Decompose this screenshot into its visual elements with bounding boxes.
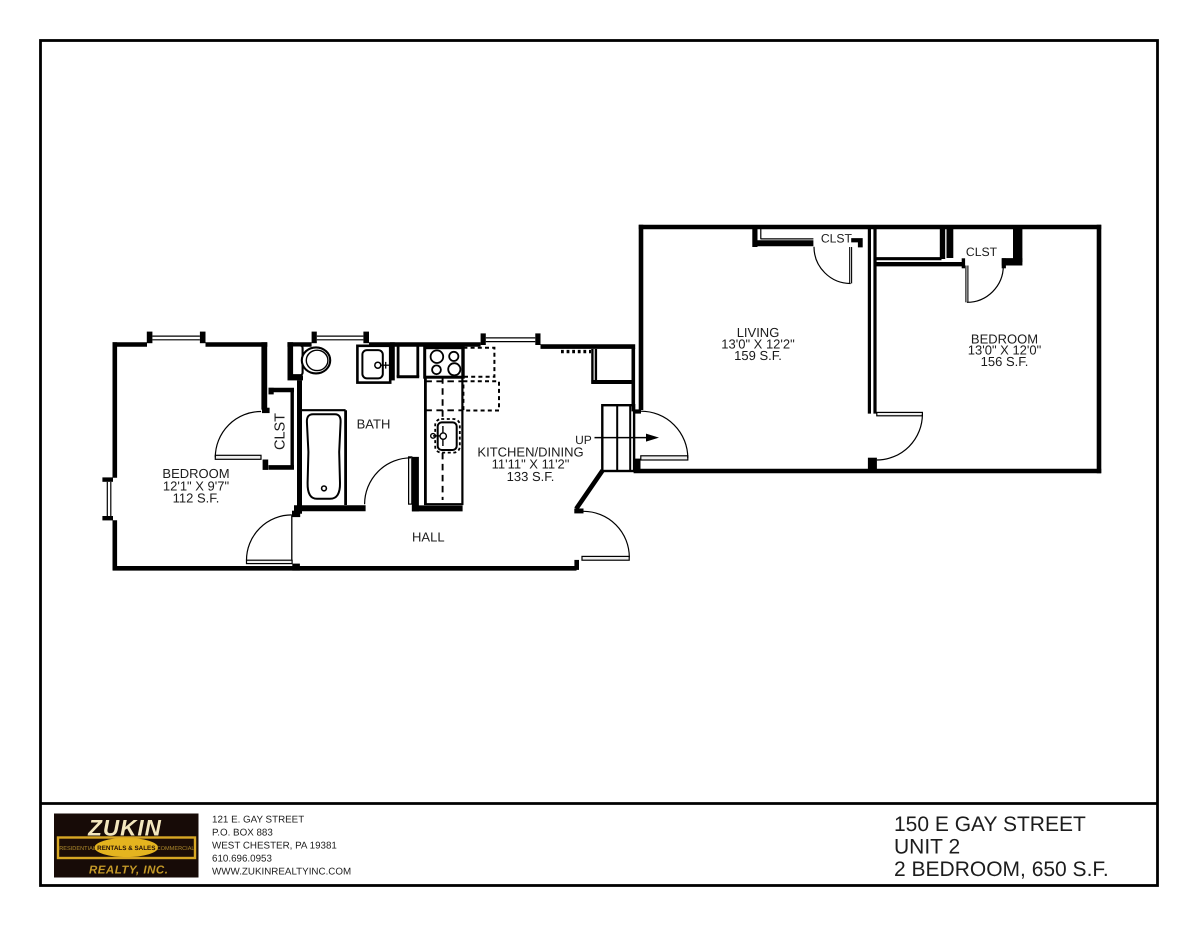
svg-text:REALTY, INC.: REALTY, INC. [89, 865, 168, 877]
svg-text:159 S.F.: 159 S.F. [734, 348, 782, 363]
svg-text:UNIT 2: UNIT 2 [894, 835, 960, 858]
svg-text:610.696.0953: 610.696.0953 [212, 854, 272, 865]
svg-text:121 E. GAY STREET: 121 E. GAY STREET [212, 815, 304, 826]
svg-text:156 S.F.: 156 S.F. [981, 354, 1029, 369]
svg-text:150 E GAY STREET: 150 E GAY STREET [894, 813, 1086, 836]
svg-text:CLST: CLST [821, 232, 853, 246]
svg-text:CLST: CLST [966, 245, 998, 259]
svg-text:RESIDENTIAL: RESIDENTIAL [59, 846, 96, 852]
svg-text:112 S.F.: 112 S.F. [173, 491, 220, 506]
svg-text:RENTALS & SALES: RENTALS & SALES [97, 845, 155, 852]
svg-text:HALL: HALL [412, 530, 445, 545]
svg-text:WEST CHESTER, PA 19381: WEST CHESTER, PA 19381 [212, 841, 337, 852]
svg-text:WWW.ZUKINREALTYINC.COM: WWW.ZUKINREALTYINC.COM [212, 867, 351, 878]
svg-text:BATH: BATH [357, 416, 391, 431]
svg-text:CLST: CLST [273, 413, 289, 450]
svg-text:COMMERCIAL: COMMERCIAL [157, 846, 195, 852]
svg-text:2 BEDROOM, 650 S.F.: 2 BEDROOM, 650 S.F. [894, 858, 1109, 881]
svg-text:UP: UP [575, 433, 592, 447]
svg-text:133 S.F.: 133 S.F. [507, 469, 555, 484]
svg-text:P.O. BOX 883: P.O. BOX 883 [212, 828, 273, 839]
